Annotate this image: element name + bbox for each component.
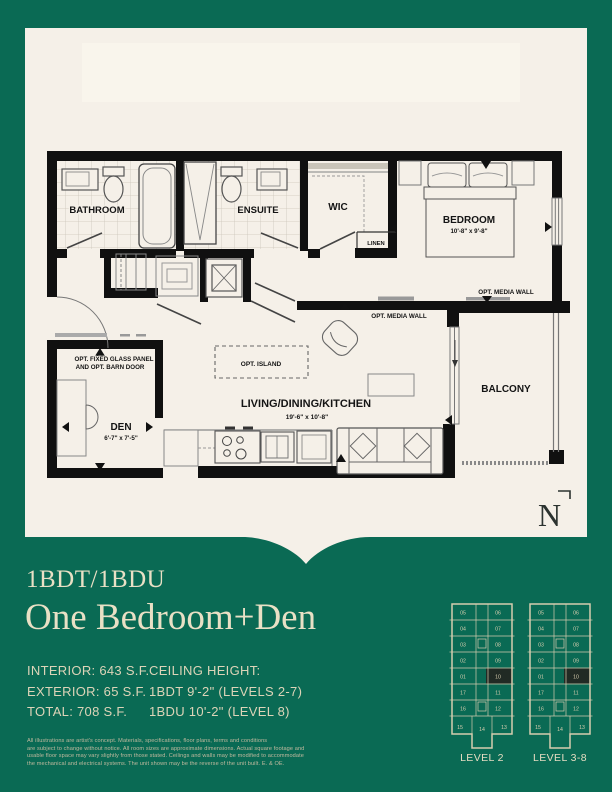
bathroom-label: BATHROOM	[69, 205, 124, 216]
bedroom-window	[552, 198, 562, 245]
keyplan-unit-number: 15	[457, 725, 463, 731]
ensuite-label: ENSUITE	[237, 205, 278, 216]
wic-label: WIC	[328, 202, 347, 213]
opt-glass-panel-label-line2: AND OPT. BARN DOOR	[76, 364, 145, 371]
keyplan-unit-number: 11	[573, 691, 578, 697]
interior-area: INTERIOR: 643 S.F.	[27, 661, 149, 682]
den-label: DEN	[110, 422, 131, 433]
keyplan-unit-number: 10	[573, 675, 579, 681]
kitchen	[164, 427, 332, 467]
disclaimer-line: the mechanical and electrical systems. T…	[27, 761, 304, 769]
opt-media-wall-center-label: OPT. MEDIA WALL	[371, 313, 427, 320]
opt-island-label: OPT. ISLAND	[241, 361, 282, 368]
keyplan-unit-number: 15	[535, 725, 541, 731]
ceiling-line1: 1BDT 9'-2" (LEVELS 2-7)	[149, 682, 302, 703]
opt-media-wall-right-label: OPT. MEDIA WALL	[478, 289, 534, 296]
balcony-label: BALCONY	[481, 384, 531, 395]
keyplan-unit-number: 07	[495, 627, 501, 633]
keyplan-unit-number: 04	[538, 627, 544, 633]
keyplan-unit-number: 17	[460, 691, 466, 697]
ceiling-line2: 1BDU 10'-2" (LEVEL 8)	[149, 702, 302, 723]
keyplan-unit-number: 04	[460, 627, 466, 633]
coffee-table	[368, 374, 414, 396]
keyplan-unit-number: 16	[538, 707, 544, 713]
keyplan-unit-number: 03	[460, 643, 466, 649]
unit-code: 1BDT/1BDU	[26, 566, 165, 594]
keyplan-unit-number: 09	[573, 659, 579, 665]
brochure-page: BATHROOM ENSUITE WIC LINEN BEDROOM 10'-8…	[0, 0, 612, 792]
living-label: LIVING/DINING/KITCHEN	[241, 398, 371, 410]
keyplan-unit-number: 08	[573, 643, 579, 649]
balcony-sliding-door	[450, 327, 459, 424]
keyplan-unit-number: 03	[538, 643, 544, 649]
exterior-area: EXTERIOR: 65 S.F.	[27, 682, 149, 703]
keyplan-label-level-3-8: LEVEL 3-8	[527, 752, 593, 764]
total-area: TOTAL: 708 S.F.	[27, 702, 149, 723]
area-stats: INTERIOR: 643 S.F. EXTERIOR: 65 S.F. TOT…	[27, 661, 149, 723]
keyplan-unit-number: 13	[579, 725, 585, 731]
disclaimer-line: usable floor space may vary slightly fro…	[27, 753, 304, 761]
den-dims: 6'-7" x 7'-5"	[104, 435, 138, 442]
sofa	[337, 428, 443, 474]
keyplan-unit-number: 06	[573, 611, 579, 617]
bedroom-label: BEDROOM	[443, 215, 495, 226]
watermark-band	[82, 43, 520, 102]
opt-glass-panel-label-line1: OPT. FIXED GLASS PANEL	[75, 356, 154, 363]
keyplan-unit-number: 11	[495, 691, 500, 697]
keyplan-unit-number: 01	[460, 675, 466, 681]
keyplan-level-2: 0506040703080209011017111612151413	[449, 601, 515, 751]
keyplan-level-3-8: 0506040703080209011017111612151413	[527, 601, 593, 751]
keyplan-unit-number: 05	[460, 611, 466, 617]
living-dims: 19'-6" x 10'-8"	[286, 414, 329, 421]
disclaimer-line: are subject to change without notice. Al…	[27, 746, 304, 754]
ceiling-heading: CEILING HEIGHT:	[149, 661, 302, 682]
keyplan-unit-number: 05	[538, 611, 544, 617]
keyplan-unit-number: 14	[479, 727, 485, 733]
keyplan-unit-number: 07	[573, 627, 579, 633]
keyplan-label-level-2: LEVEL 2	[449, 752, 515, 764]
keyplan-unit-number: 17	[538, 691, 544, 697]
keyplan-unit-number: 12	[495, 707, 501, 713]
keyplan-unit-number: 08	[495, 643, 501, 649]
keyplan-unit-number: 06	[495, 611, 501, 617]
page-title: One Bedroom+Den	[25, 596, 316, 639]
keyplan-unit-number: 02	[538, 659, 544, 665]
washer-dryer-closet	[206, 259, 242, 297]
bedroom-dims: 10'-8" x 9'-8"	[450, 228, 487, 235]
keyplan-unit-number: 14	[557, 727, 563, 733]
disclaimer: All illustrations are artist's concept. …	[27, 738, 304, 769]
keyplan-unit-number: 12	[573, 707, 579, 713]
ceiling-stats: CEILING HEIGHT: 1BDT 9'-2" (LEVELS 2-7) …	[149, 661, 302, 723]
linen-label: LINEN	[367, 241, 384, 247]
keyplan-unit-number: 02	[460, 659, 466, 665]
disclaimer-line: All illustrations are artist's concept. …	[27, 738, 304, 746]
keyplan-unit-number: 09	[495, 659, 501, 665]
keyplan-unit-number: 01	[538, 675, 544, 681]
keyplan-unit-number: 10	[495, 675, 501, 681]
north-letter: N	[538, 497, 561, 533]
keyplan-unit-number: 13	[501, 725, 507, 731]
keyplan-unit-number: 16	[460, 707, 466, 713]
